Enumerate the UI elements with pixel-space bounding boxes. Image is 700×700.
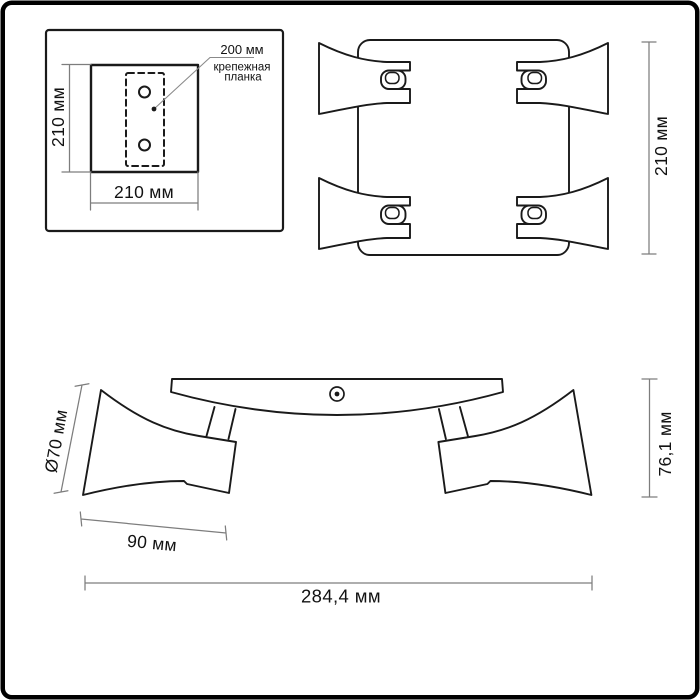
side-view: Ø70 мм 90 мм 284,4 мм 76,1 мм xyxy=(41,379,675,607)
top-view-height-label: 210 мм xyxy=(651,116,671,176)
overall-width-label: 284,4 мм xyxy=(301,586,381,607)
shade-stem-left xyxy=(207,407,236,439)
inset-width-label: 210 мм xyxy=(114,182,174,202)
inset-panel: 200 мм крепежная планка 210 мм 210 мм xyxy=(46,30,283,231)
inset-height-label: 210 мм xyxy=(48,87,68,147)
shade-left-side-view xyxy=(83,390,236,495)
callout-name-line2: планка xyxy=(224,72,262,84)
dimension-drawing-page: 200 мм крепежная планка 210 мм 210 мм 21… xyxy=(0,0,700,700)
mounting-plate-outline xyxy=(91,65,198,172)
top-view: 210 мм xyxy=(319,40,671,255)
mount-bar-side-view xyxy=(171,379,503,415)
callout-leader-dot xyxy=(152,107,157,112)
shade-right-side-view xyxy=(438,390,591,495)
screw-center-dot xyxy=(335,392,340,397)
side-height-label: 76,1 мм xyxy=(655,411,675,476)
callout-value-label: 200 мм xyxy=(220,42,263,57)
shade-length-label: 90 мм xyxy=(126,531,178,556)
technical-drawing-svg: 200 мм крепежная планка 210 мм 210 мм 21… xyxy=(0,0,700,700)
shade-stem-right xyxy=(439,407,468,439)
